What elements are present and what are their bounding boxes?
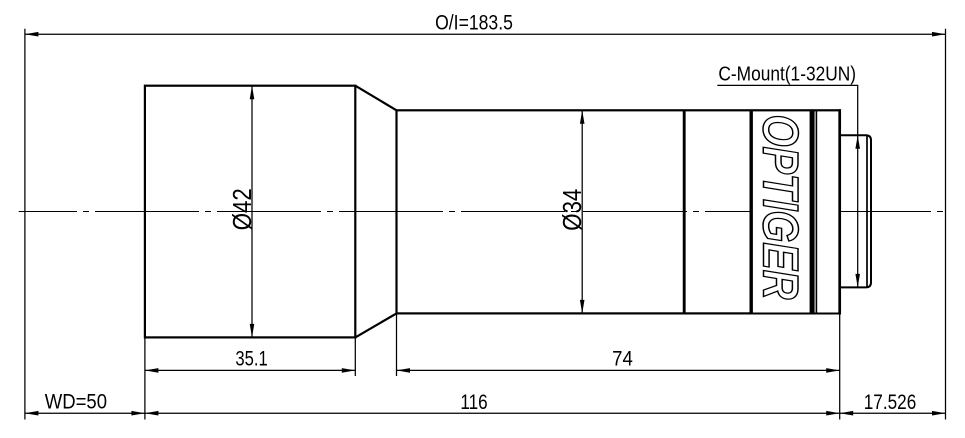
svg-text:WD=50: WD=50 [45,391,107,414]
svg-text:17.526: 17.526 [864,391,917,414]
svg-text:35.1: 35.1 [235,348,267,371]
svg-text:116: 116 [460,391,487,414]
svg-text:74: 74 [612,348,633,371]
svg-text:OPTIGER: OPTIGER [753,115,809,300]
svg-text:C-Mount(1-32UN): C-Mount(1-32UN) [718,62,856,85]
svg-text:O/I=183.5: O/I=183.5 [435,12,513,35]
svg-text:Ø34: Ø34 [557,189,587,231]
svg-text:Ø42: Ø42 [227,188,257,230]
